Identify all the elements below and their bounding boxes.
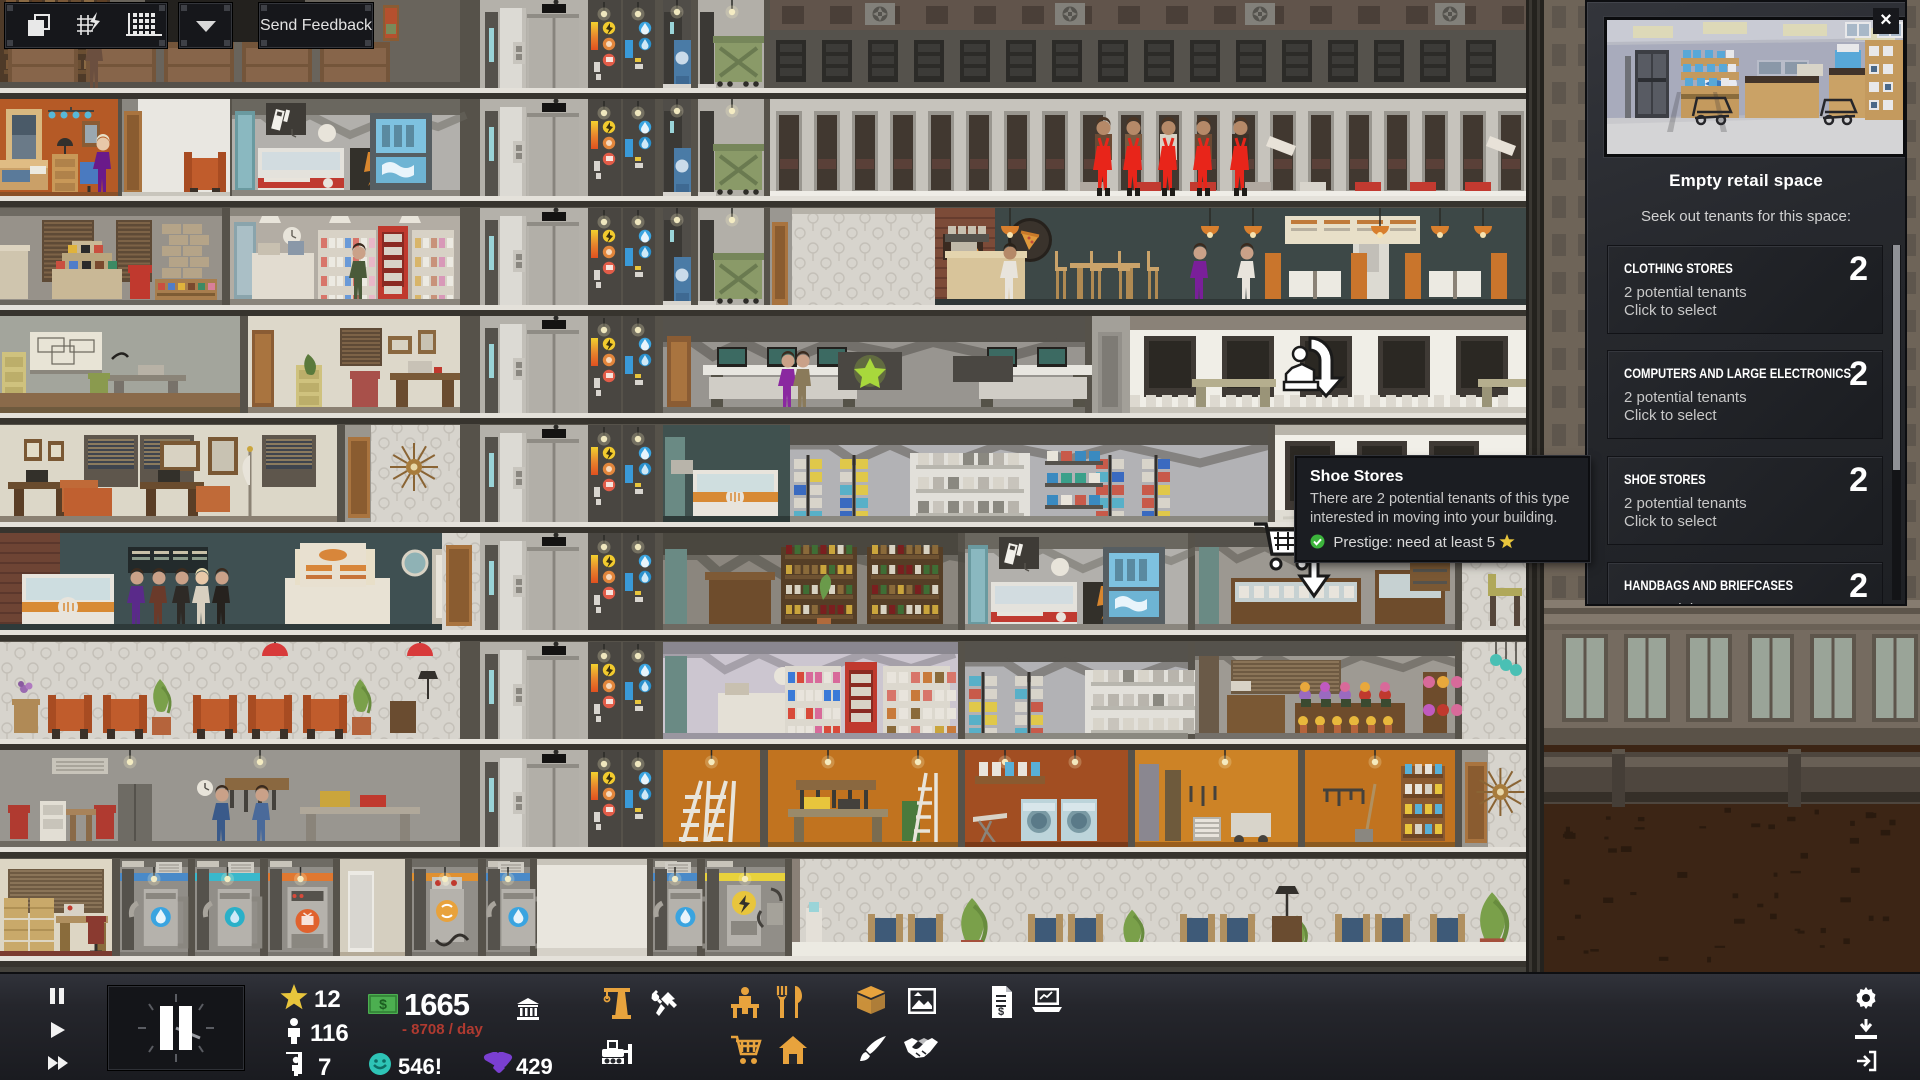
svg-text:$: $ <box>379 996 387 1012</box>
svg-text:$: $ <box>998 1006 1004 1018</box>
